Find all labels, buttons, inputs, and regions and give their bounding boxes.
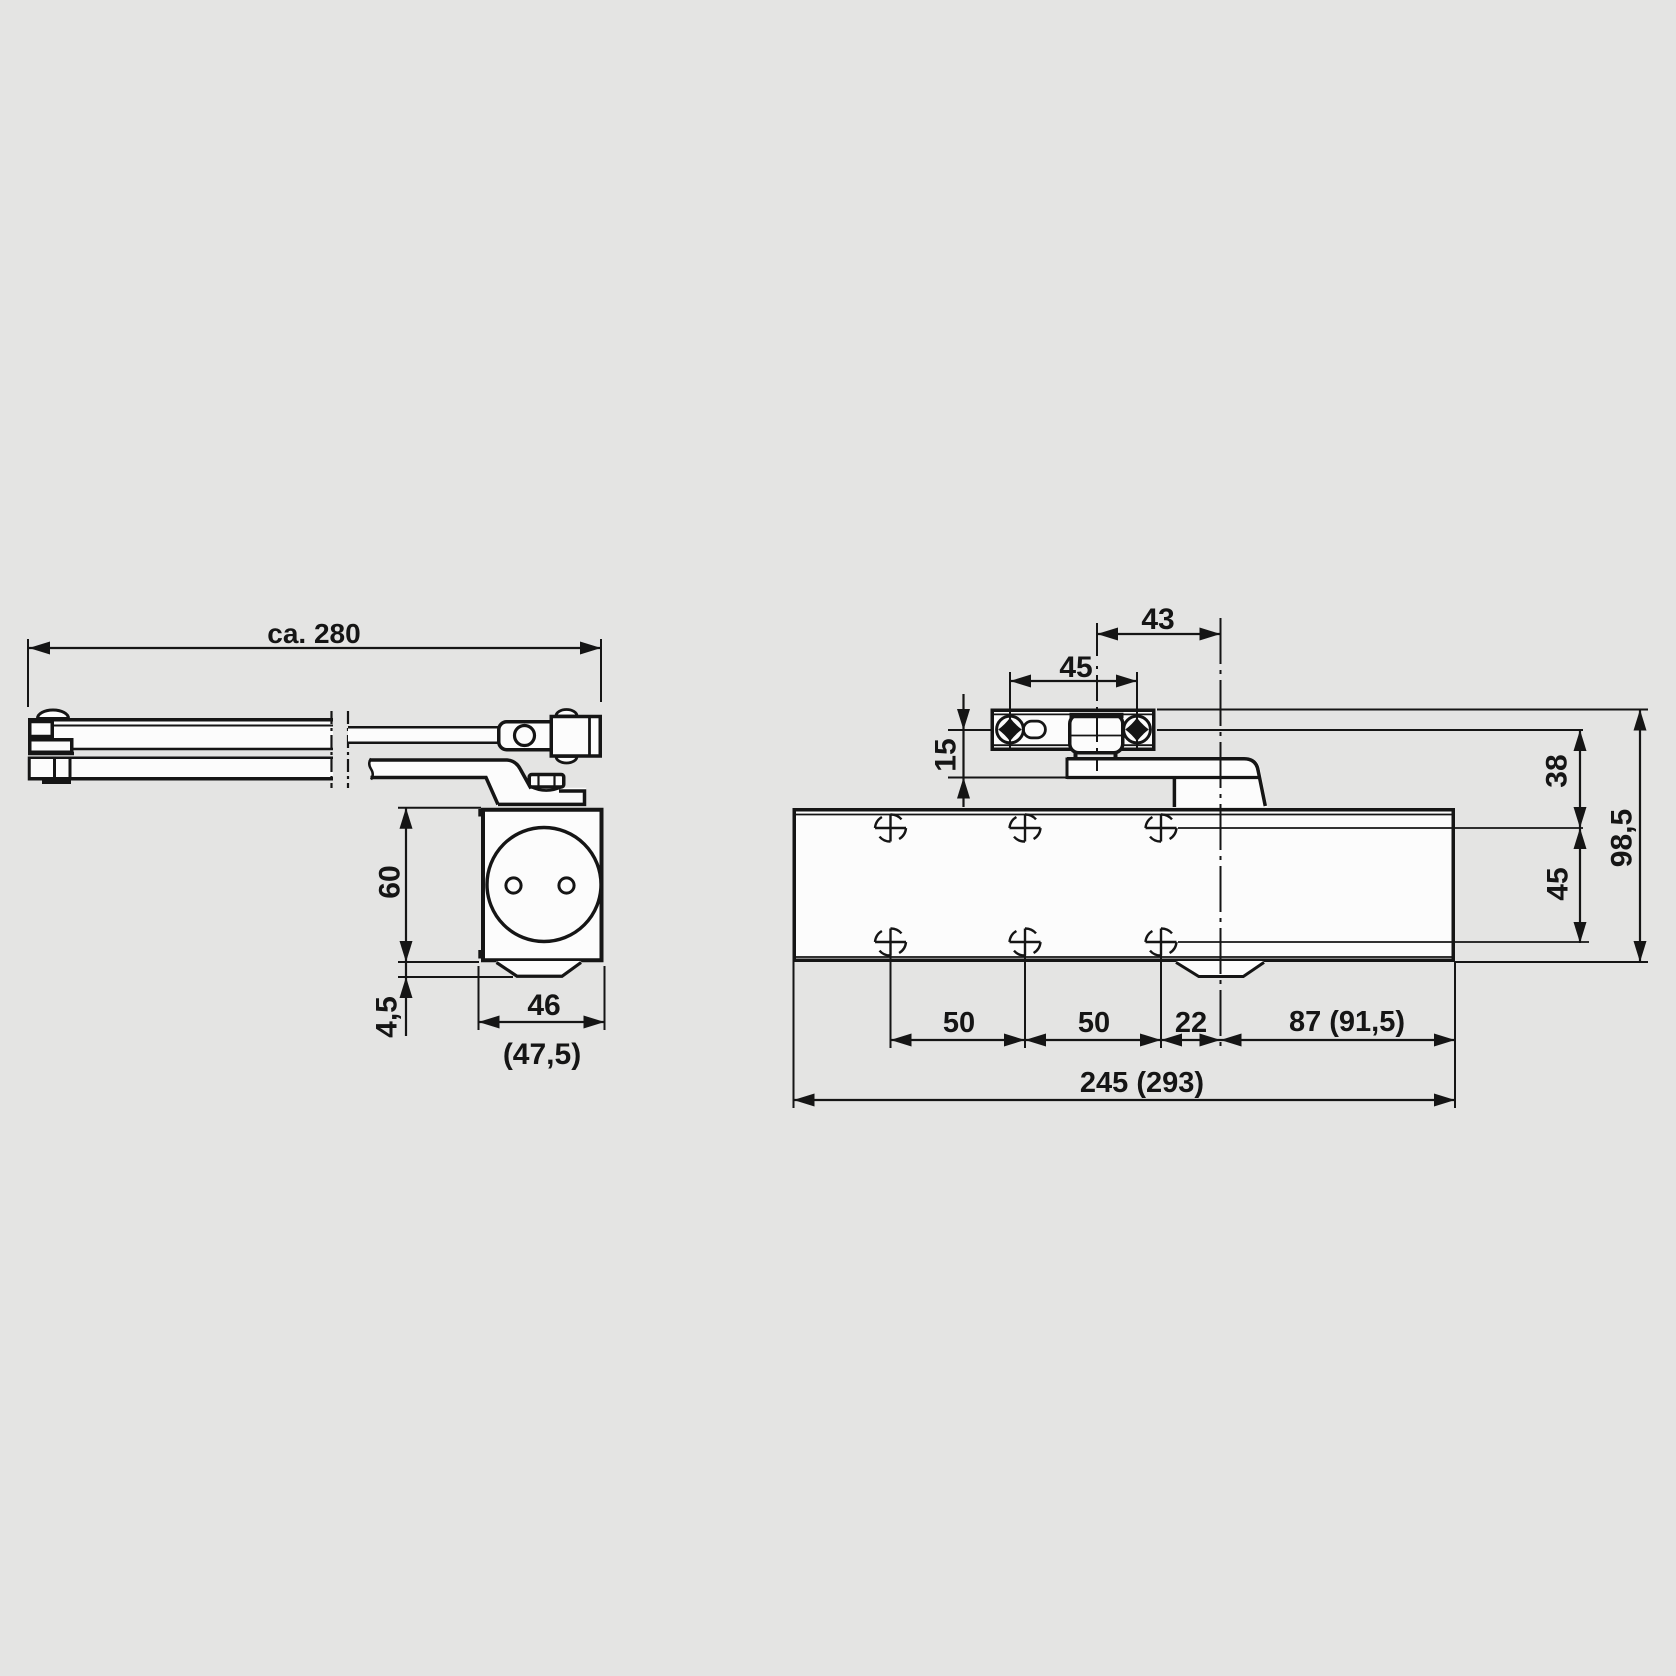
svg-text:22: 22: [1175, 1007, 1207, 1039]
svg-text:43: 43: [1141, 603, 1174, 636]
svg-text:(47,5): (47,5): [503, 1038, 581, 1071]
svg-text:45: 45: [1059, 651, 1092, 684]
svg-text:98,5: 98,5: [1606, 809, 1639, 867]
svg-text:38: 38: [1541, 754, 1574, 787]
svg-text:46: 46: [527, 989, 560, 1022]
svg-text:4,5: 4,5: [371, 996, 404, 1038]
svg-text:50: 50: [943, 1007, 975, 1039]
svg-text:45: 45: [1542, 867, 1575, 900]
svg-text:ca. 280: ca. 280: [267, 618, 360, 649]
svg-text:245 (293): 245 (293): [1080, 1067, 1204, 1099]
svg-text:87 (91,5): 87 (91,5): [1289, 1006, 1405, 1038]
svg-text:50: 50: [1078, 1007, 1110, 1039]
svg-text:60: 60: [374, 865, 407, 898]
svg-text:15: 15: [930, 738, 963, 771]
